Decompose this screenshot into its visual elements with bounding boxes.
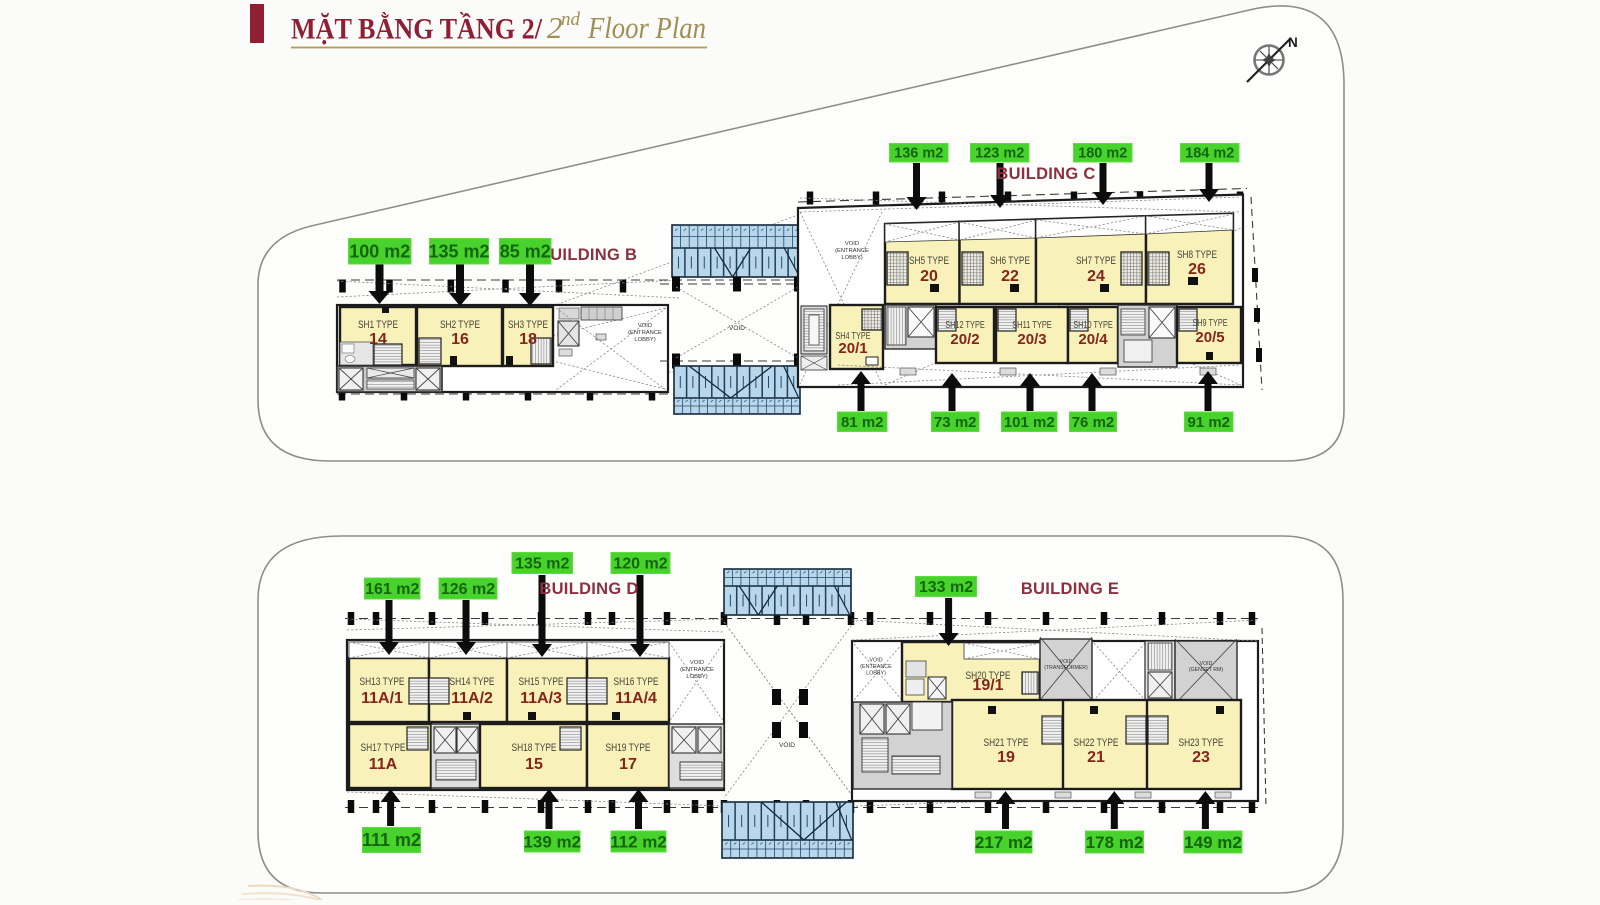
svg-text:112 m2: 112 m2 <box>610 832 667 851</box>
svg-text:SH3 TYPE: SH3 TYPE <box>508 319 548 331</box>
svg-text:133 m2: 133 m2 <box>919 579 973 596</box>
svg-text:11A/1: 11A/1 <box>361 690 403 707</box>
svg-text:217 m2: 217 m2 <box>975 833 1033 852</box>
svg-text:(ENTRANCE: (ENTRANCE <box>860 664 892 670</box>
svg-text:20/1: 20/1 <box>838 340 867 357</box>
svg-text:SH8 TYPE: SH8 TYPE <box>1177 249 1217 261</box>
svg-text:20/2: 20/2 <box>950 331 979 348</box>
svg-text:VOID: VOID <box>845 241 859 247</box>
svg-text:19/1: 19/1 <box>972 677 1003 694</box>
svg-text:BUILDING C: BUILDING C <box>996 165 1095 183</box>
svg-text:22: 22 <box>1001 268 1019 285</box>
svg-text:81 m2: 81 m2 <box>841 414 884 431</box>
svg-text:SH11 TYPE: SH11 TYPE <box>1012 320 1052 331</box>
svg-text:126 m2: 126 m2 <box>441 581 495 598</box>
svg-text:11A: 11A <box>369 756 398 773</box>
svg-text:SH17 TYPE: SH17 TYPE <box>361 742 406 754</box>
svg-text:120 m2: 120 m2 <box>613 555 667 572</box>
svg-text:161 m2: 161 m2 <box>365 581 419 598</box>
svg-text:LOBBY): LOBBY) <box>841 255 862 261</box>
svg-text:N: N <box>1288 35 1298 50</box>
svg-text:(ENTRANCE: (ENTRANCE <box>628 330 662 336</box>
svg-text:BUILDING D: BUILDING D <box>539 580 638 598</box>
svg-text:SH2 TYPE: SH2 TYPE <box>440 319 480 331</box>
svg-text:91 m2: 91 m2 <box>1187 414 1230 431</box>
svg-text:(ENTRANCE: (ENTRANCE <box>680 667 714 673</box>
svg-text:139 m2: 139 m2 <box>523 832 581 851</box>
svg-text:19: 19 <box>997 749 1015 766</box>
svg-text:20/5: 20/5 <box>1195 329 1224 346</box>
svg-text:11A/3: 11A/3 <box>520 690 562 707</box>
svg-text:149 m2: 149 m2 <box>1184 833 1242 852</box>
svg-text:LOBBY): LOBBY) <box>634 337 655 343</box>
svg-text:20/4: 20/4 <box>1078 331 1108 348</box>
svg-text:SH13 TYPE: SH13 TYPE <box>360 676 405 688</box>
svg-text:76 m2: 76 m2 <box>1072 414 1115 431</box>
svg-text:VOID: VOID <box>1200 661 1213 667</box>
svg-text:SH5 TYPE: SH5 TYPE <box>909 255 949 267</box>
svg-text:17: 17 <box>619 756 637 773</box>
svg-text:123 m2: 123 m2 <box>975 146 1024 162</box>
svg-text:SH23 TYPE: SH23 TYPE <box>1179 737 1224 749</box>
svg-text:14: 14 <box>369 331 387 348</box>
svg-text:21: 21 <box>1087 749 1105 766</box>
svg-text:11A/2: 11A/2 <box>451 690 493 707</box>
svg-text:26: 26 <box>1188 261 1206 278</box>
svg-text:111 m2: 111 m2 <box>362 830 421 850</box>
svg-text:VOID: VOID <box>638 323 652 329</box>
svg-text:136 m2: 136 m2 <box>894 146 943 162</box>
svg-text:SH6 TYPE: SH6 TYPE <box>990 255 1030 267</box>
svg-text:VOID: VOID <box>729 325 745 332</box>
svg-text:VOID: VOID <box>779 742 795 749</box>
svg-text:SH19 TYPE: SH19 TYPE <box>606 742 651 754</box>
svg-text:SH22 TYPE: SH22 TYPE <box>1074 737 1119 749</box>
svg-text:85 m2: 85 m2 <box>500 241 551 261</box>
svg-text:180 m2: 180 m2 <box>1078 146 1127 162</box>
svg-text:SH10 TYPE: SH10 TYPE <box>1073 320 1113 331</box>
svg-text:73 m2: 73 m2 <box>934 414 977 431</box>
svg-text:BUILDING E: BUILDING E <box>1021 580 1119 598</box>
svg-text:11A/4: 11A/4 <box>615 690 657 707</box>
svg-text:LOBBY): LOBBY) <box>686 674 707 680</box>
svg-text:SH9 TYPE: SH9 TYPE <box>1192 318 1227 329</box>
svg-text:135 m2: 135 m2 <box>428 241 489 261</box>
svg-text:100 m2: 100 m2 <box>349 241 410 261</box>
svg-text:(ENTRANCE: (ENTRANCE <box>835 248 869 254</box>
svg-text:101 m2: 101 m2 <box>1004 414 1055 431</box>
svg-text:24: 24 <box>1087 268 1105 285</box>
svg-text:(TRANSFORMER): (TRANSFORMER) <box>1044 665 1088 671</box>
svg-text:(GENSET RM): (GENSET RM) <box>1189 667 1223 673</box>
svg-text:135 m2: 135 m2 <box>515 555 569 572</box>
svg-text:LOBBY): LOBBY) <box>866 671 886 677</box>
svg-text:20: 20 <box>920 268 938 285</box>
svg-text:20/3: 20/3 <box>1017 331 1046 348</box>
svg-text:Floor Plan: Floor Plan <box>587 10 706 45</box>
svg-text:SH18 TYPE: SH18 TYPE <box>512 742 557 754</box>
svg-text:23: 23 <box>1192 749 1210 766</box>
svg-text:SH7 TYPE: SH7 TYPE <box>1076 255 1116 267</box>
svg-text:MẶT BẰNG TẦNG 2/: MẶT BẰNG TẦNG 2/ <box>291 12 543 46</box>
svg-text:BUILDING B: BUILDING B <box>538 246 637 264</box>
svg-text:18: 18 <box>519 331 537 348</box>
svg-text:VOID: VOID <box>1060 659 1073 665</box>
svg-text:SH16 TYPE: SH16 TYPE <box>614 676 659 688</box>
svg-text:SH15 TYPE: SH15 TYPE <box>519 676 564 688</box>
svg-text:SH21 TYPE: SH21 TYPE <box>984 737 1029 749</box>
svg-text:SH14 TYPE: SH14 TYPE <box>450 676 495 688</box>
svg-text:SH1 TYPE: SH1 TYPE <box>358 319 398 331</box>
svg-text:184 m2: 184 m2 <box>1185 146 1234 162</box>
svg-text:15: 15 <box>525 756 543 773</box>
svg-text:VOID: VOID <box>869 657 882 663</box>
svg-text:SH12 TYPE: SH12 TYPE <box>945 320 985 331</box>
svg-text:VOID: VOID <box>690 660 704 666</box>
svg-text:16: 16 <box>451 331 469 348</box>
svg-text:178 m2: 178 m2 <box>1086 833 1144 852</box>
